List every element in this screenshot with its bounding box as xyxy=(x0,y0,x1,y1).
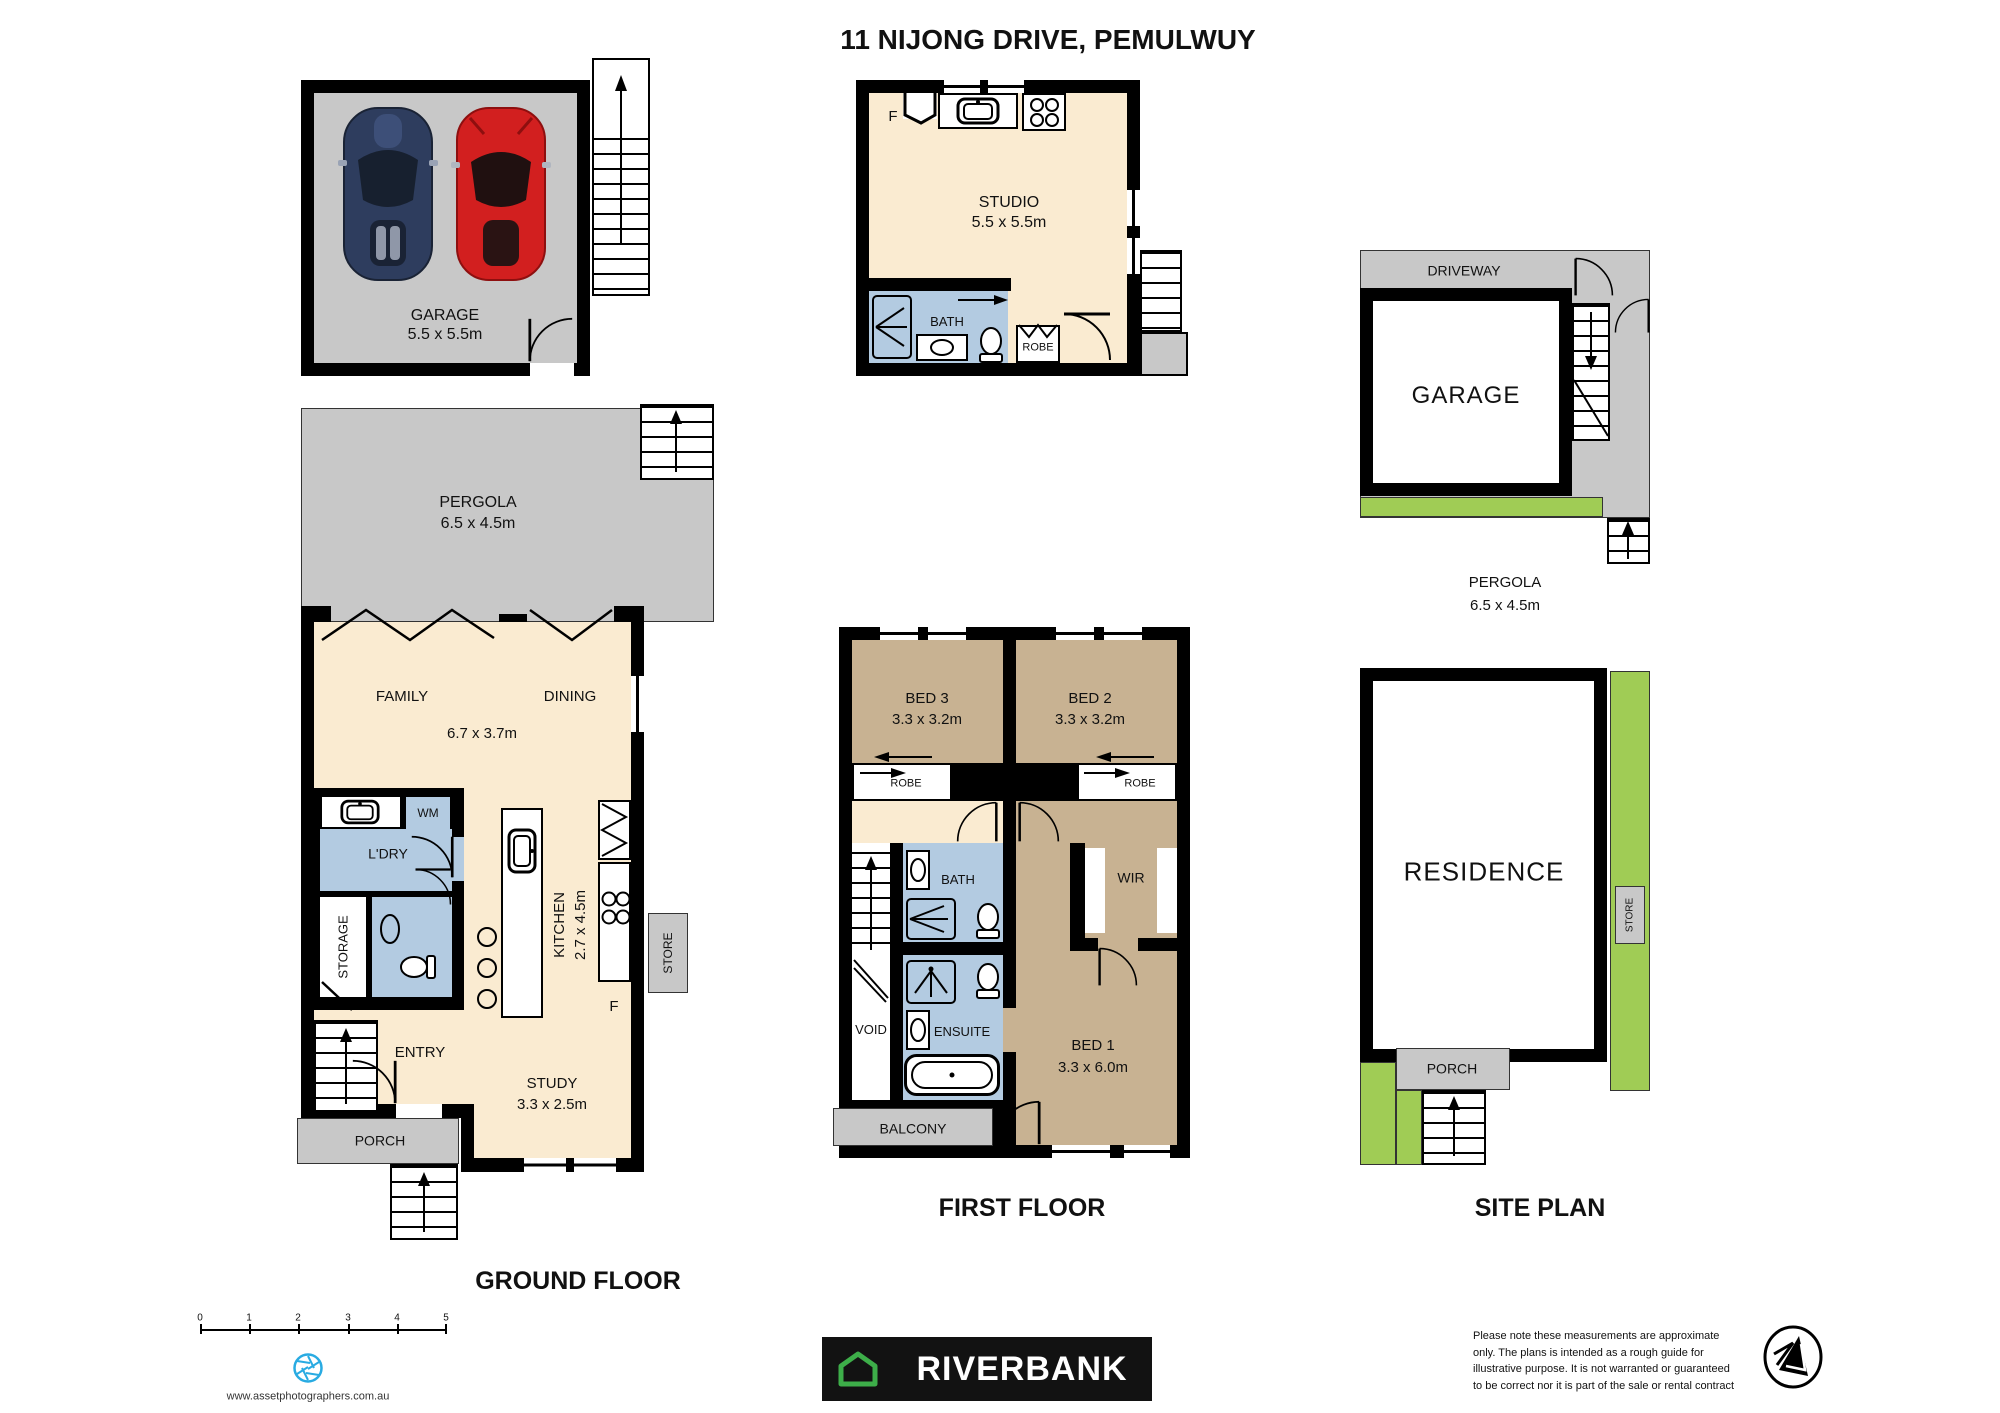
window xyxy=(1127,238,1140,274)
bed1-door-gap xyxy=(1003,1008,1016,1052)
bath-label: BATH xyxy=(941,871,975,889)
cooktop-icon xyxy=(1026,96,1062,128)
first-floor-title: FIRST FLOOR xyxy=(939,1192,1106,1226)
stair-break-line xyxy=(1572,378,1610,440)
dining-label: DINING xyxy=(544,687,597,707)
studio-bath-label: BATH xyxy=(930,313,964,331)
site-garden-right xyxy=(1610,671,1650,1091)
studio-external-stairs xyxy=(1140,250,1182,332)
site-pergola-label: PERGOLA xyxy=(1469,573,1542,593)
study-dims-label: 3.3 x 2.5m xyxy=(517,1095,587,1115)
bifold-icon xyxy=(1018,323,1058,339)
kitchen-label: KITCHEN xyxy=(549,890,570,960)
toilet-icon xyxy=(974,902,1002,940)
studio-entry-door xyxy=(903,93,937,125)
toilet-icon xyxy=(977,326,1005,364)
toilet-icon xyxy=(399,953,437,981)
storage-door-line xyxy=(320,980,354,1012)
studio-stair-landing xyxy=(1140,332,1188,376)
bath-partition-wall xyxy=(869,278,1011,291)
window xyxy=(1056,627,1094,640)
fridge-label: F xyxy=(609,997,618,1017)
studio-fridge-label: F xyxy=(888,107,897,127)
bed1-label: BED 1 xyxy=(1071,1036,1114,1056)
red-car-icon xyxy=(450,104,552,284)
scale-tick xyxy=(348,1324,350,1334)
scale-tick-label: 0 xyxy=(197,1311,203,1325)
site-plan-title: SITE PLAN xyxy=(1475,1192,1606,1226)
scale-tick-label: 1 xyxy=(246,1311,252,1325)
store-label: STORE xyxy=(661,932,675,973)
scale-tick-label: 4 xyxy=(394,1311,400,1325)
stairs-up-arrow xyxy=(863,856,879,952)
entry-label: ENTRY xyxy=(395,1043,446,1063)
scale-tick-label: 5 xyxy=(443,1311,449,1325)
window xyxy=(1104,627,1142,640)
site-garage-label: GARAGE xyxy=(1412,380,1521,412)
bifold-doors-icon xyxy=(320,608,496,642)
porch-label: PORCH xyxy=(355,1132,406,1151)
basin-icon xyxy=(909,1016,927,1044)
wall-left xyxy=(301,606,314,1118)
basin-icon xyxy=(928,338,956,357)
pergola-label: PERGOLA xyxy=(439,492,516,514)
window xyxy=(1052,1145,1110,1158)
site-garden-bottom-left xyxy=(1360,1062,1396,1165)
studio-dims-label: 5.5 x 5.5m xyxy=(972,212,1047,234)
sliding-door-arrow xyxy=(1096,752,1156,762)
balcony-door-arc xyxy=(995,1100,1041,1146)
wir-label: WIR xyxy=(1117,869,1144,888)
site-garden-bottom xyxy=(1396,1090,1422,1165)
family-dining-dims-label: 6.7 x 3.7m xyxy=(447,724,517,744)
window xyxy=(988,80,1024,93)
shower-icon xyxy=(910,963,952,1001)
shower-icon xyxy=(874,300,910,354)
robe-label: ROBE xyxy=(890,777,921,792)
garage-dims-label: 5.5 x 5.5m xyxy=(408,324,483,346)
garage-door-arc xyxy=(528,317,574,363)
wall xyxy=(903,942,1003,955)
scale-tick xyxy=(445,1324,447,1334)
driveway-label: DRIVEWAY xyxy=(1427,262,1500,281)
stairs-up-arrow xyxy=(416,1172,432,1234)
disclaimer-text: Please note these measurements are appro… xyxy=(1473,1328,1735,1394)
basin-icon xyxy=(378,912,402,946)
photographer-url: www.assetphotographers.com.au xyxy=(227,1390,390,1405)
stairs-down-arrow xyxy=(1583,310,1599,370)
site-door-arc xyxy=(1614,298,1650,334)
wir-door-arc xyxy=(1098,947,1138,987)
scale-line xyxy=(200,1329,447,1331)
window xyxy=(1124,1145,1170,1158)
studio-room-label: STUDIO xyxy=(979,192,1039,214)
stairs-up-arrow xyxy=(1620,521,1636,561)
window xyxy=(928,627,966,640)
bed3-dims-label: 3.3 x 3.2m xyxy=(892,710,962,730)
scale-tick-label: 3 xyxy=(345,1311,351,1325)
study-label: STUDY xyxy=(527,1074,578,1094)
blue-car-icon xyxy=(336,104,440,284)
window xyxy=(631,676,644,732)
pergola-dims-label: 6.5 x 4.5m xyxy=(441,513,516,535)
aperture-icon xyxy=(292,1352,324,1384)
laundry-label: L'DRY xyxy=(368,845,408,864)
residence-label: RESIDENCE xyxy=(1404,854,1565,889)
front-door-arc xyxy=(351,1059,397,1105)
site-porch-label: PORCH xyxy=(1427,1060,1478,1079)
stool-icons xyxy=(476,926,498,1010)
family-label: FAMILY xyxy=(376,687,428,707)
stairs-up-arrow xyxy=(613,75,629,245)
cooktop-icon xyxy=(599,888,631,928)
site-store-label: STORE xyxy=(1625,898,1636,932)
garage-door-gap xyxy=(530,363,574,376)
stairs-up-arrow xyxy=(1446,1096,1462,1158)
compass-icon xyxy=(1762,1324,1824,1390)
shower-icon xyxy=(908,901,952,937)
brand-name: RIVERBANK xyxy=(916,1347,1127,1393)
wir-shelf xyxy=(1157,848,1177,933)
window xyxy=(524,1158,566,1172)
window xyxy=(944,80,980,93)
wir-wall xyxy=(1070,843,1085,938)
kitchen-dims-label: 2.7 x 4.5m xyxy=(570,890,591,960)
basin-icon xyxy=(909,856,927,884)
ground-floor-title: GROUND FLOOR xyxy=(475,1265,681,1299)
wm-label: WM xyxy=(417,805,438,821)
stair-break-line xyxy=(852,958,890,1004)
sliding-door-arrow xyxy=(1082,768,1130,778)
bathtub-icon xyxy=(904,1054,1000,1096)
storage-label: STORAGE xyxy=(336,915,351,978)
bed3-door-arc xyxy=(956,801,998,843)
void-label: VOID xyxy=(855,1021,887,1039)
bed2-door-arc xyxy=(1018,801,1060,843)
bed2-label: BED 2 xyxy=(1068,689,1111,709)
site-door-arc xyxy=(1574,256,1614,298)
scale-tick xyxy=(397,1324,399,1334)
window xyxy=(880,627,918,640)
scale-tick xyxy=(249,1324,251,1334)
front-door-gap xyxy=(396,1104,442,1118)
studio-robe-label: ROBE xyxy=(1022,341,1053,356)
ensuite-label: ENSUITE xyxy=(934,1023,990,1041)
sink-icon xyxy=(340,799,380,825)
stairs-up-arrow xyxy=(668,410,684,474)
sink-icon xyxy=(956,97,1000,125)
powder-door-arc xyxy=(414,868,452,906)
sliding-door-arrow xyxy=(858,768,906,778)
bed2-dims-label: 3.3 x 3.2m xyxy=(1055,710,1125,730)
kitchen-label-block: KITCHEN 2.7 x 4.5m xyxy=(549,890,591,960)
bifold-icon xyxy=(600,802,629,858)
toilet-icon xyxy=(974,962,1002,1000)
scale-tick xyxy=(298,1324,300,1334)
studio-rear-door-arc xyxy=(1062,312,1112,362)
wir-shelf xyxy=(1085,848,1105,933)
window xyxy=(574,1158,616,1172)
window xyxy=(1127,190,1140,226)
page-title: 11 NIJONG DRIVE, PEMULWUY xyxy=(840,21,1255,59)
scale-tick xyxy=(200,1324,202,1334)
sliding-door-arrow xyxy=(956,294,1008,306)
sliding-door-arrow xyxy=(874,752,934,762)
bifold-doors-icon xyxy=(528,608,614,642)
scale-tick-label: 2 xyxy=(295,1311,301,1325)
site-pergola-dims-label: 6.5 x 4.5m xyxy=(1470,596,1540,616)
bed3-label: BED 3 xyxy=(905,689,948,709)
sink-icon xyxy=(507,828,537,874)
floorplan-sheet: 11 NIJONG DRIVE, PEMULWUY GARAGE 5.5 x 5… xyxy=(0,0,2000,1413)
bed1-dims-label: 3.3 x 6.0m xyxy=(1058,1058,1128,1078)
wall xyxy=(890,843,903,1100)
brand-house-icon xyxy=(838,1350,878,1388)
balcony-label: BALCONY xyxy=(880,1120,947,1139)
robe-label: ROBE xyxy=(1124,777,1155,792)
site-garden-strip xyxy=(1360,497,1603,517)
